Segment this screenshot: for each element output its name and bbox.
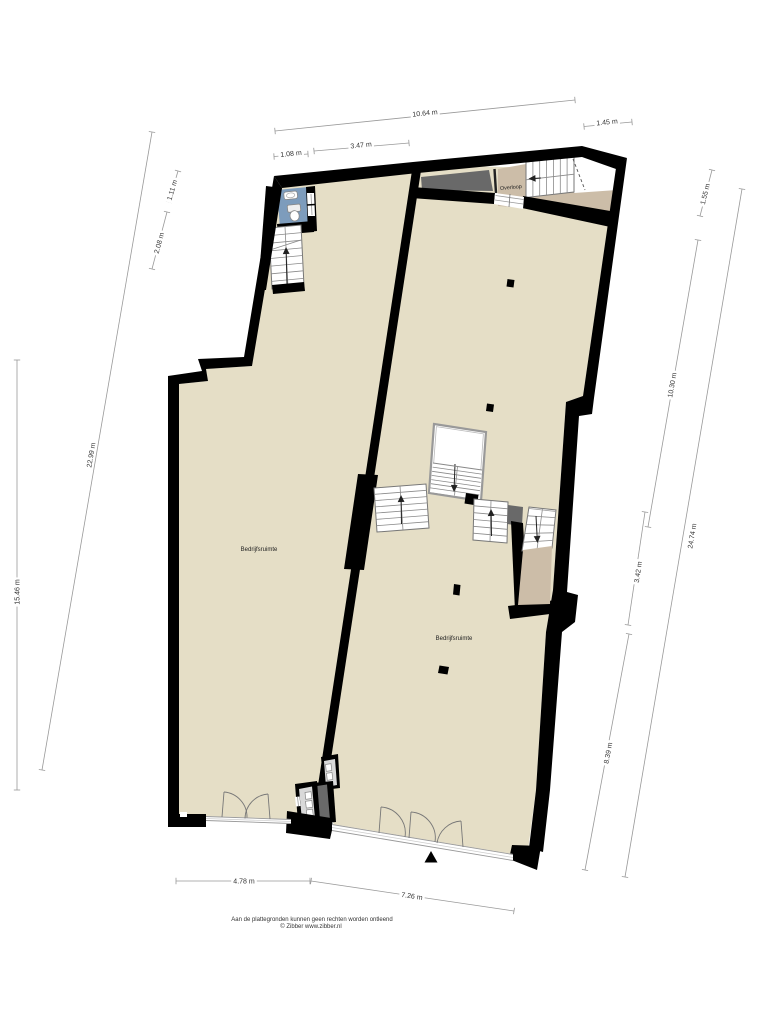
svg-text:15.46 m: 15.46 m <box>14 579 21 604</box>
svg-text:Bedrijfsruimte: Bedrijfsruimte <box>436 636 473 642</box>
svg-text:4.78 m: 4.78 m <box>233 878 255 885</box>
svg-text:© Zibber www.zibber.nl: © Zibber www.zibber.nl <box>280 923 341 930</box>
svg-text:Aan de plattegronden kunnen ge: Aan de plattegronden kunnen geen rechten… <box>231 917 392 923</box>
svg-text:Bedrijfsruimte: Bedrijfsruimte <box>241 547 278 553</box>
